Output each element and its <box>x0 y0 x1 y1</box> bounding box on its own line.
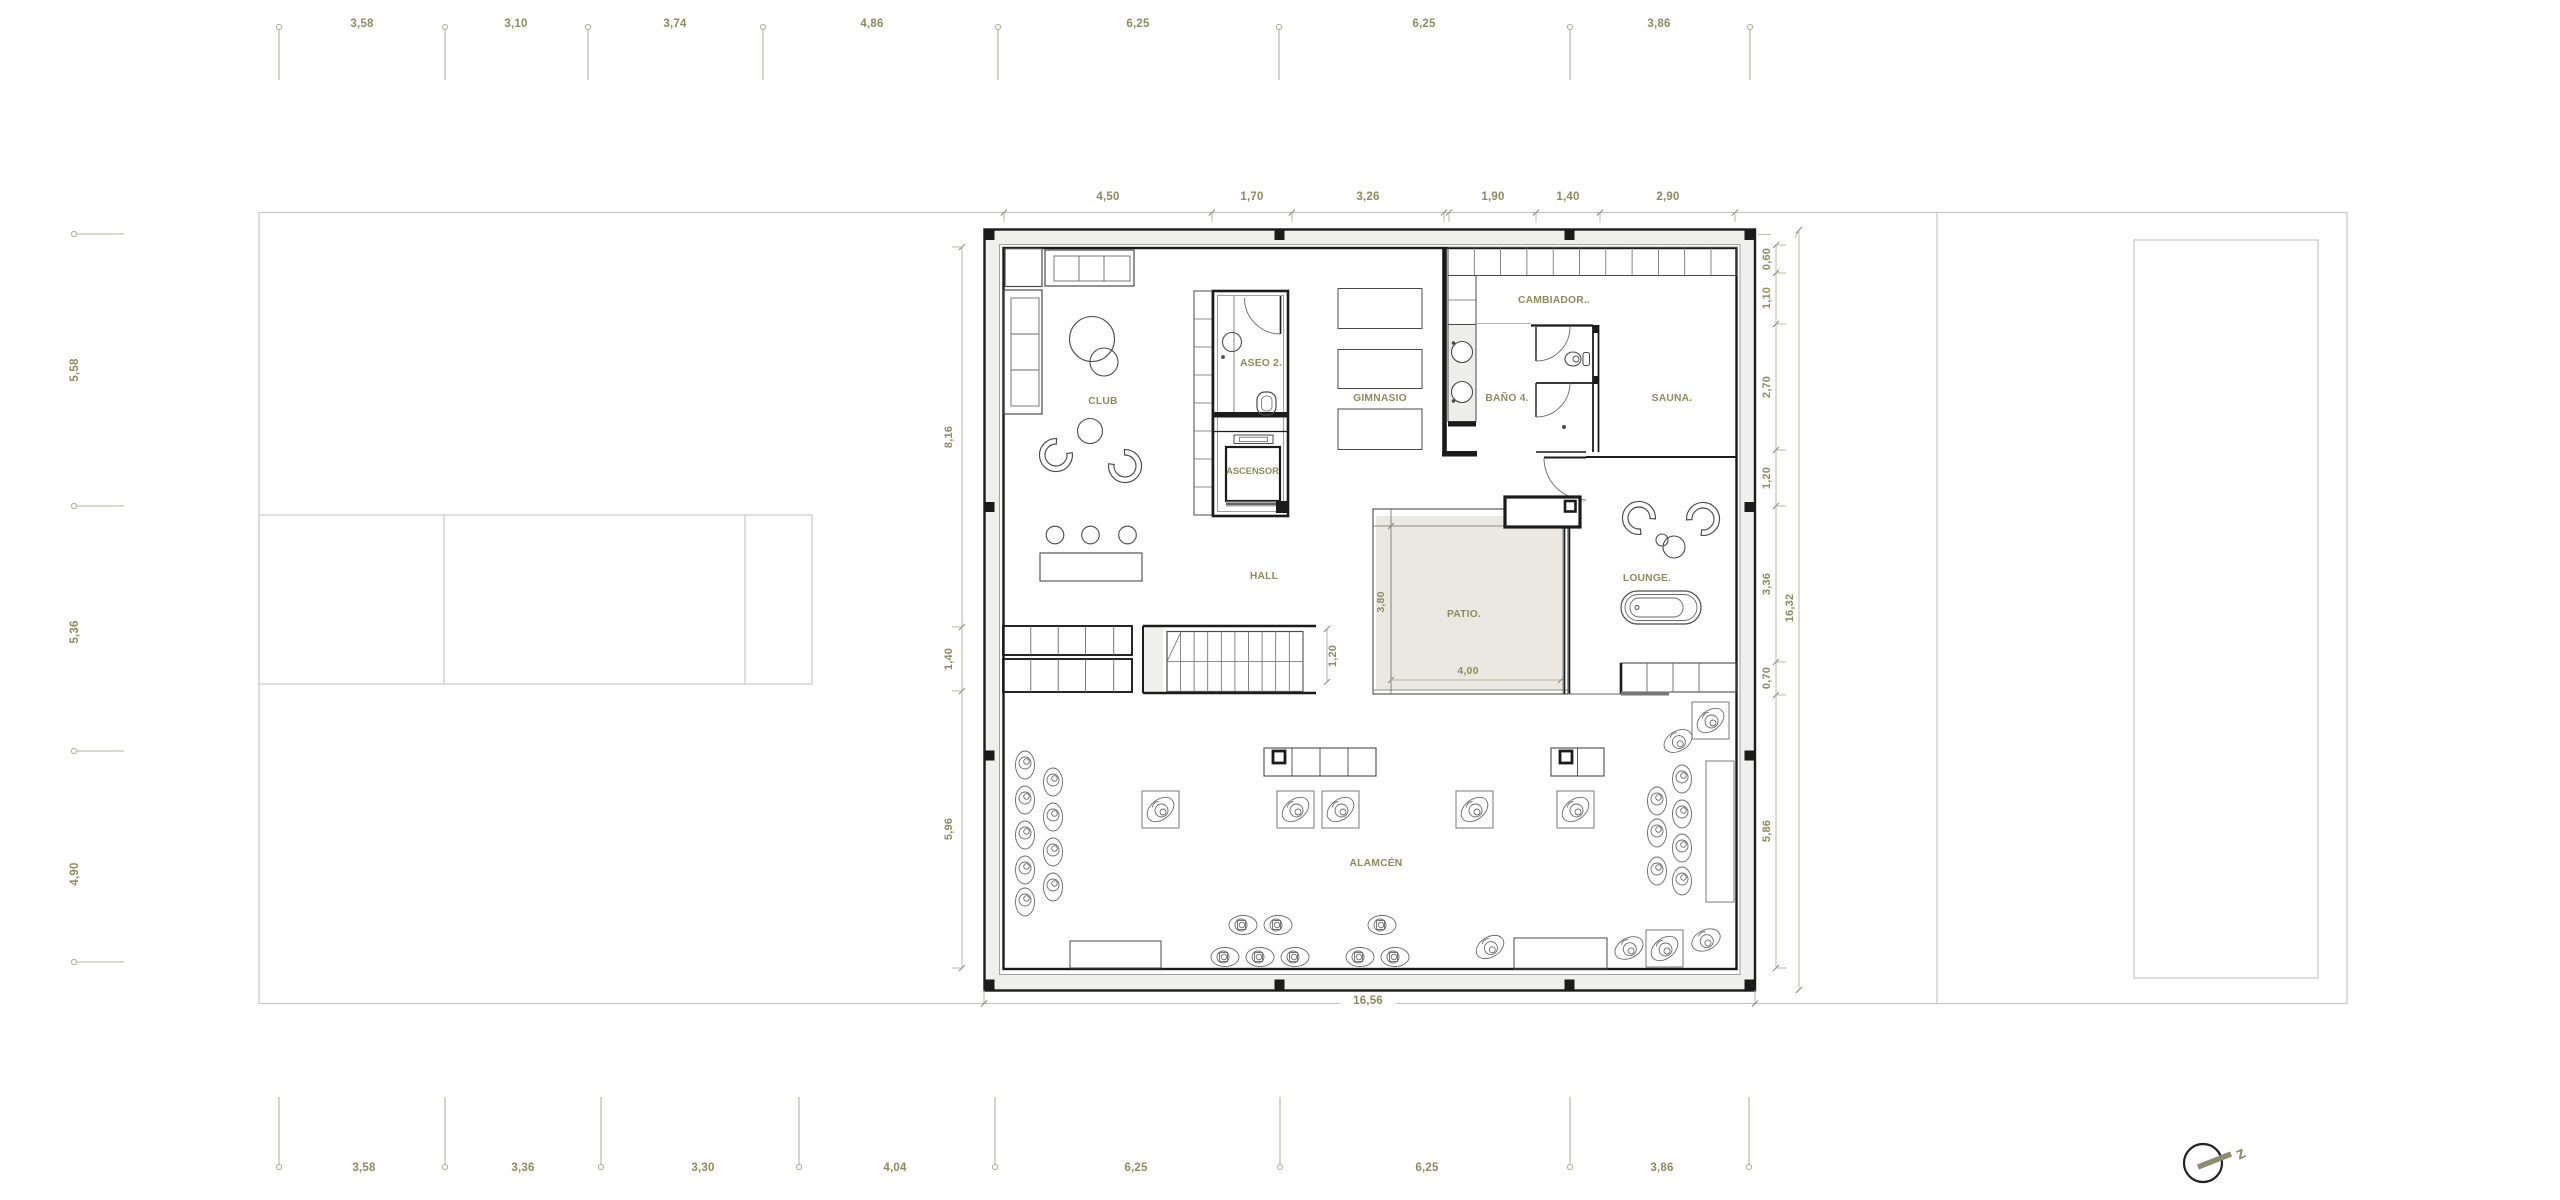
svg-text:LOUNGE.: LOUNGE. <box>1623 573 1671 584</box>
svg-text:ASCENSOR: ASCENSOR <box>1226 466 1279 476</box>
svg-text:4,00: 4,00 <box>1457 665 1478 677</box>
svg-text:4,86: 4,86 <box>860 18 883 30</box>
svg-text:1,40: 1,40 <box>1556 191 1579 203</box>
svg-text:4,04: 4,04 <box>883 1162 907 1174</box>
svg-text:4,90: 4,90 <box>69 862 81 885</box>
svg-text:5,86: 5,86 <box>1761 820 1773 842</box>
svg-text:3,58: 3,58 <box>350 18 374 30</box>
svg-text:3,80: 3,80 <box>1375 591 1387 612</box>
svg-text:3,26: 3,26 <box>1356 191 1379 203</box>
svg-text:GIMNASIO: GIMNASIO <box>1353 393 1407 404</box>
svg-text:3,36: 3,36 <box>511 1162 534 1174</box>
svg-text:1,10: 1,10 <box>1761 287 1773 309</box>
svg-text:ALAMCÉN: ALAMCÉN <box>1350 856 1403 869</box>
svg-text:16,56: 16,56 <box>1353 995 1383 1007</box>
svg-text:6,25: 6,25 <box>1412 18 1436 30</box>
svg-text:0,70: 0,70 <box>1761 667 1773 689</box>
svg-text:3,58: 3,58 <box>352 1162 376 1174</box>
svg-text:5,36: 5,36 <box>69 620 81 643</box>
svg-text:6,25: 6,25 <box>1415 1162 1439 1174</box>
svg-text:16,32: 16,32 <box>1784 594 1796 623</box>
svg-text:3,30: 3,30 <box>691 1162 714 1174</box>
svg-text:3,36: 3,36 <box>1761 573 1773 595</box>
svg-text:3,86: 3,86 <box>1650 1162 1673 1174</box>
svg-text:1,20: 1,20 <box>1327 645 1339 667</box>
svg-text:4,50: 4,50 <box>1096 191 1119 203</box>
svg-text:2,70: 2,70 <box>1761 376 1773 398</box>
svg-text:8,16: 8,16 <box>943 426 955 448</box>
svg-text:1,90: 1,90 <box>1481 191 1504 203</box>
svg-text:HALL: HALL <box>1250 571 1278 582</box>
svg-text:1,20: 1,20 <box>1761 467 1773 489</box>
svg-text:z: z <box>2233 1143 2249 1164</box>
svg-text:CLUB: CLUB <box>1088 396 1117 407</box>
svg-text:6,25: 6,25 <box>1126 18 1150 30</box>
svg-text:PATIO.: PATIO. <box>1447 609 1481 620</box>
svg-text:CAMBIADOR..: CAMBIADOR.. <box>1518 295 1590 306</box>
svg-text:5,58: 5,58 <box>69 358 81 382</box>
svg-text:ASEO 2.: ASEO 2. <box>1240 358 1282 369</box>
svg-text:3,74: 3,74 <box>663 18 687 30</box>
svg-text:3,10: 3,10 <box>504 18 527 30</box>
svg-text:SAUNA.: SAUNA. <box>1652 393 1693 404</box>
svg-text:5,96: 5,96 <box>943 818 955 840</box>
svg-text:2,90: 2,90 <box>1656 191 1679 203</box>
svg-text:1,70: 1,70 <box>1240 191 1263 203</box>
svg-text:3,86: 3,86 <box>1647 18 1670 30</box>
svg-text:0,60: 0,60 <box>1761 248 1773 270</box>
svg-text:BAÑO 4.: BAÑO 4. <box>1485 391 1528 404</box>
svg-text:1,40: 1,40 <box>943 648 955 670</box>
svg-text:6,25: 6,25 <box>1124 1162 1148 1174</box>
